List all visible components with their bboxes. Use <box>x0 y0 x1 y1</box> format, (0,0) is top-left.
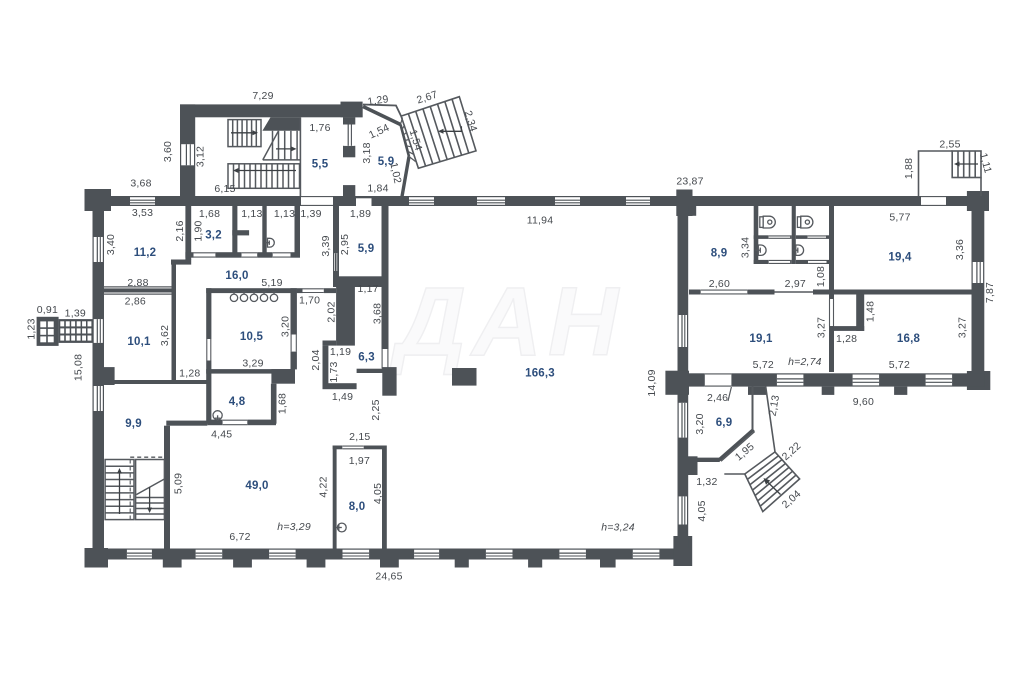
svg-text:3,39: 3,39 <box>320 235 332 256</box>
svg-text:4,8: 4,8 <box>229 396 246 408</box>
svg-text:6,9: 6,9 <box>716 417 733 429</box>
svg-text:h=3,29: h=3,29 <box>277 521 311 533</box>
svg-text:24,65: 24,65 <box>375 571 402 583</box>
svg-text:3,68: 3,68 <box>372 303 384 324</box>
svg-text:1,02: 1,02 <box>387 161 403 184</box>
svg-text:3,29: 3,29 <box>242 358 263 370</box>
svg-text:6,15: 6,15 <box>214 183 235 195</box>
svg-text:1,90: 1,90 <box>192 220 204 241</box>
svg-text:2,86: 2,86 <box>125 296 146 308</box>
svg-text:6,72: 6,72 <box>229 531 250 543</box>
svg-text:9,60: 9,60 <box>853 396 874 408</box>
svg-text:2,34: 2,34 <box>462 109 480 133</box>
svg-text:11,2: 11,2 <box>134 247 157 259</box>
svg-text:9,9: 9,9 <box>125 418 142 430</box>
svg-text:1,28: 1,28 <box>179 368 200 380</box>
svg-text:10,5: 10,5 <box>240 331 264 343</box>
svg-text:1,89: 1,89 <box>350 208 371 220</box>
svg-text:h=2,74: h=2,74 <box>788 356 822 368</box>
svg-text:4,45: 4,45 <box>211 429 232 441</box>
svg-text:3,27: 3,27 <box>957 317 969 338</box>
svg-text:166,3: 166,3 <box>525 368 555 380</box>
svg-text:3,53: 3,53 <box>132 207 153 219</box>
svg-text:3,18: 3,18 <box>361 142 373 163</box>
svg-text:4,05: 4,05 <box>372 483 384 504</box>
svg-text:4,05: 4,05 <box>696 500 708 521</box>
svg-text:3,62: 3,62 <box>159 325 171 346</box>
svg-text:1,23: 1,23 <box>25 318 37 339</box>
svg-text:3,34: 3,34 <box>740 237 752 258</box>
svg-text:h=3,24: h=3,24 <box>601 522 635 534</box>
svg-text:1,76: 1,76 <box>309 122 330 134</box>
svg-text:3,60: 3,60 <box>162 141 174 162</box>
svg-text:5,5: 5,5 <box>312 159 329 171</box>
svg-text:3,27: 3,27 <box>816 317 828 338</box>
svg-text:2,02: 2,02 <box>325 301 337 322</box>
svg-text:1,39: 1,39 <box>65 308 86 320</box>
svg-text:7,29: 7,29 <box>252 90 273 102</box>
svg-text:3,2: 3,2 <box>205 230 222 242</box>
svg-text:2,46: 2,46 <box>707 392 728 404</box>
svg-text:2,25: 2,25 <box>370 399 382 420</box>
svg-text:1,11: 1,11 <box>977 152 994 175</box>
svg-text:1,19: 1,19 <box>330 346 351 358</box>
svg-text:1,48: 1,48 <box>865 301 877 322</box>
svg-text:4,22: 4,22 <box>318 476 330 497</box>
svg-text:5,9: 5,9 <box>358 243 375 255</box>
svg-text:1,08: 1,08 <box>815 266 827 287</box>
svg-text:1,49: 1,49 <box>332 391 353 403</box>
svg-text:3,40: 3,40 <box>105 234 117 255</box>
svg-text:2,97: 2,97 <box>785 278 806 290</box>
svg-text:2,95: 2,95 <box>339 234 351 255</box>
svg-text:ДАН: ДАН <box>389 267 624 376</box>
svg-text:1,73: 1,73 <box>328 361 340 382</box>
svg-text:5,77: 5,77 <box>889 212 910 224</box>
svg-text:16,8: 16,8 <box>897 333 921 345</box>
svg-text:3,20: 3,20 <box>280 316 292 337</box>
svg-text:2,16: 2,16 <box>174 220 186 241</box>
svg-text:8,0: 8,0 <box>349 501 366 513</box>
svg-text:1,13: 1,13 <box>241 208 262 220</box>
svg-text:2,04: 2,04 <box>310 349 322 370</box>
svg-text:19,4: 19,4 <box>888 252 912 264</box>
svg-text:1,70: 1,70 <box>299 295 320 307</box>
svg-text:5,09: 5,09 <box>172 473 184 494</box>
svg-text:49,0: 49,0 <box>245 480 268 492</box>
svg-text:2,13: 2,13 <box>767 394 783 417</box>
svg-text:15,08: 15,08 <box>73 354 85 381</box>
svg-text:1,28: 1,28 <box>836 333 857 345</box>
svg-text:3,68: 3,68 <box>130 178 151 190</box>
svg-text:5,72: 5,72 <box>753 359 774 371</box>
svg-text:1,13: 1,13 <box>274 208 295 220</box>
svg-text:2,22: 2,22 <box>780 440 804 463</box>
svg-text:11,94: 11,94 <box>527 215 554 227</box>
svg-text:5,19: 5,19 <box>261 277 282 289</box>
svg-text:1,32: 1,32 <box>696 476 717 488</box>
svg-text:1,39: 1,39 <box>300 208 321 220</box>
svg-text:0,91: 0,91 <box>37 304 58 316</box>
svg-text:2,88: 2,88 <box>127 277 148 289</box>
svg-text:3,36: 3,36 <box>954 239 966 260</box>
svg-text:1,54: 1,54 <box>367 122 391 142</box>
svg-text:1,68: 1,68 <box>199 208 220 220</box>
svg-text:2,55: 2,55 <box>939 139 960 151</box>
svg-text:2,15: 2,15 <box>349 431 370 443</box>
svg-text:10,1: 10,1 <box>127 336 151 348</box>
svg-text:8,9: 8,9 <box>711 248 728 260</box>
svg-text:1,88: 1,88 <box>903 158 915 179</box>
svg-text:1,97: 1,97 <box>349 455 370 467</box>
svg-text:23,87: 23,87 <box>676 176 703 188</box>
svg-text:16,0: 16,0 <box>225 270 248 282</box>
svg-text:2,60: 2,60 <box>709 278 730 290</box>
svg-text:1,68: 1,68 <box>276 393 288 414</box>
svg-text:14,09: 14,09 <box>646 369 658 396</box>
svg-text:19,1: 19,1 <box>749 333 773 345</box>
svg-text:2,04: 2,04 <box>780 488 804 511</box>
svg-text:1,17: 1,17 <box>357 283 378 295</box>
svg-text:1,84: 1,84 <box>367 183 388 195</box>
svg-text:3,20: 3,20 <box>694 413 706 434</box>
svg-text:6,3: 6,3 <box>358 352 375 364</box>
svg-text:3,12: 3,12 <box>194 146 206 167</box>
svg-text:7,87: 7,87 <box>984 282 996 303</box>
svg-text:5,72: 5,72 <box>889 359 910 371</box>
